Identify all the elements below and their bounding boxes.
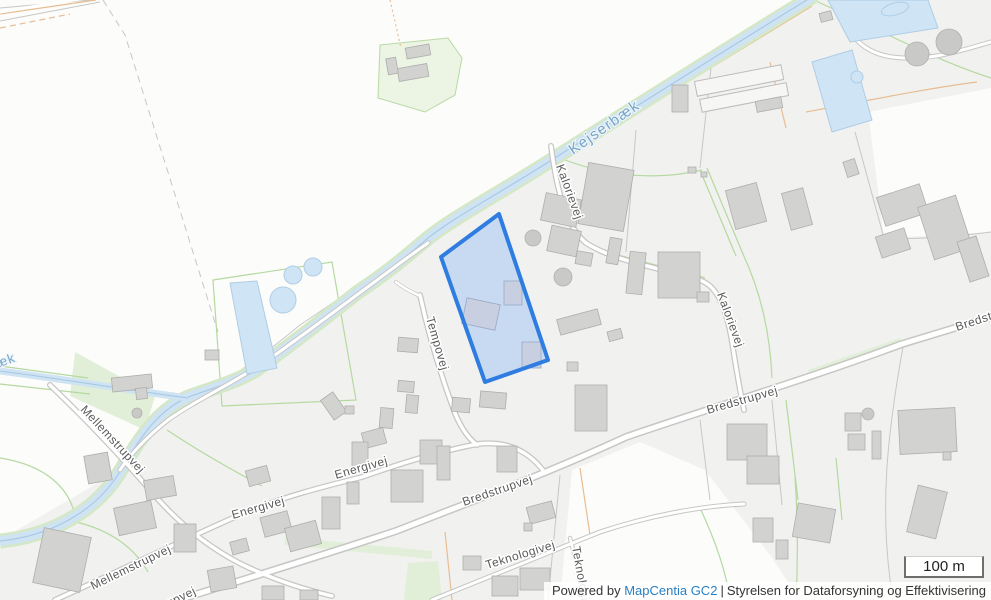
scale-bar: 100 m	[904, 556, 984, 578]
building	[672, 85, 688, 112]
attribution-agency: Styrelsen for Dataforsyning og Effektivi…	[727, 583, 986, 598]
street-label-bredstrupvej-edge: Bredstrupvej	[954, 298, 991, 334]
building	[379, 407, 394, 428]
building	[907, 485, 948, 539]
building	[848, 434, 865, 450]
building	[207, 566, 236, 592]
building	[843, 159, 859, 178]
building	[697, 292, 709, 302]
map-viewport[interactable]: Kejserbæk Kejserbæk Kalorievej Kalorieve…	[0, 0, 991, 600]
building	[658, 252, 700, 298]
building	[776, 540, 788, 559]
building	[451, 397, 470, 413]
building	[845, 413, 861, 431]
building	[792, 503, 835, 543]
building	[753, 518, 773, 542]
building	[437, 446, 450, 480]
building	[347, 482, 359, 504]
building	[607, 328, 623, 341]
building	[135, 387, 147, 399]
building	[398, 380, 415, 392]
building	[557, 309, 602, 335]
building	[943, 452, 951, 460]
building	[578, 162, 634, 231]
street-label-bredstrupvej-center: Bredstrupvej	[460, 472, 534, 509]
building	[84, 452, 112, 484]
map-canvas[interactable]: Kejserbæk Kejserbæk Kalorievej Kalorieve…	[0, 0, 991, 600]
building	[463, 556, 481, 570]
building	[479, 391, 506, 409]
building	[497, 446, 517, 472]
building	[391, 470, 423, 502]
building	[781, 188, 812, 230]
building	[397, 337, 418, 353]
building	[872, 431, 881, 459]
building	[405, 395, 419, 414]
building	[524, 523, 532, 531]
building	[322, 497, 340, 529]
building	[725, 183, 766, 230]
building	[320, 392, 346, 420]
street-label-mellemstrupvej-partial: Mellemstrupvej	[113, 584, 198, 600]
building	[114, 500, 157, 535]
street-label-tempovej: Tempovej	[423, 315, 452, 372]
building	[567, 362, 578, 371]
building	[819, 11, 833, 23]
building	[262, 586, 284, 600]
building	[300, 590, 318, 600]
building	[230, 538, 250, 555]
building	[345, 406, 354, 414]
building	[747, 456, 779, 484]
scale-bar-label: 100 m	[923, 558, 965, 575]
building	[957, 236, 989, 282]
attribution-separator: |	[720, 583, 723, 598]
building	[526, 501, 556, 524]
building	[898, 408, 957, 455]
building	[143, 476, 176, 501]
building	[727, 424, 767, 460]
building	[492, 576, 518, 596]
building	[875, 228, 910, 258]
building	[701, 172, 707, 177]
building	[205, 350, 219, 360]
building	[575, 385, 607, 431]
building	[245, 465, 270, 486]
mapcentia-gc2-link[interactable]: MapCentia GC2	[624, 583, 717, 598]
attribution-powered-by: Powered by	[552, 583, 624, 598]
attribution-bar: Powered by MapCentia GC2|Styrelsen for D…	[544, 582, 991, 600]
building	[575, 251, 593, 267]
building	[688, 167, 696, 173]
building	[174, 524, 196, 552]
building	[504, 281, 522, 305]
building	[547, 225, 582, 257]
